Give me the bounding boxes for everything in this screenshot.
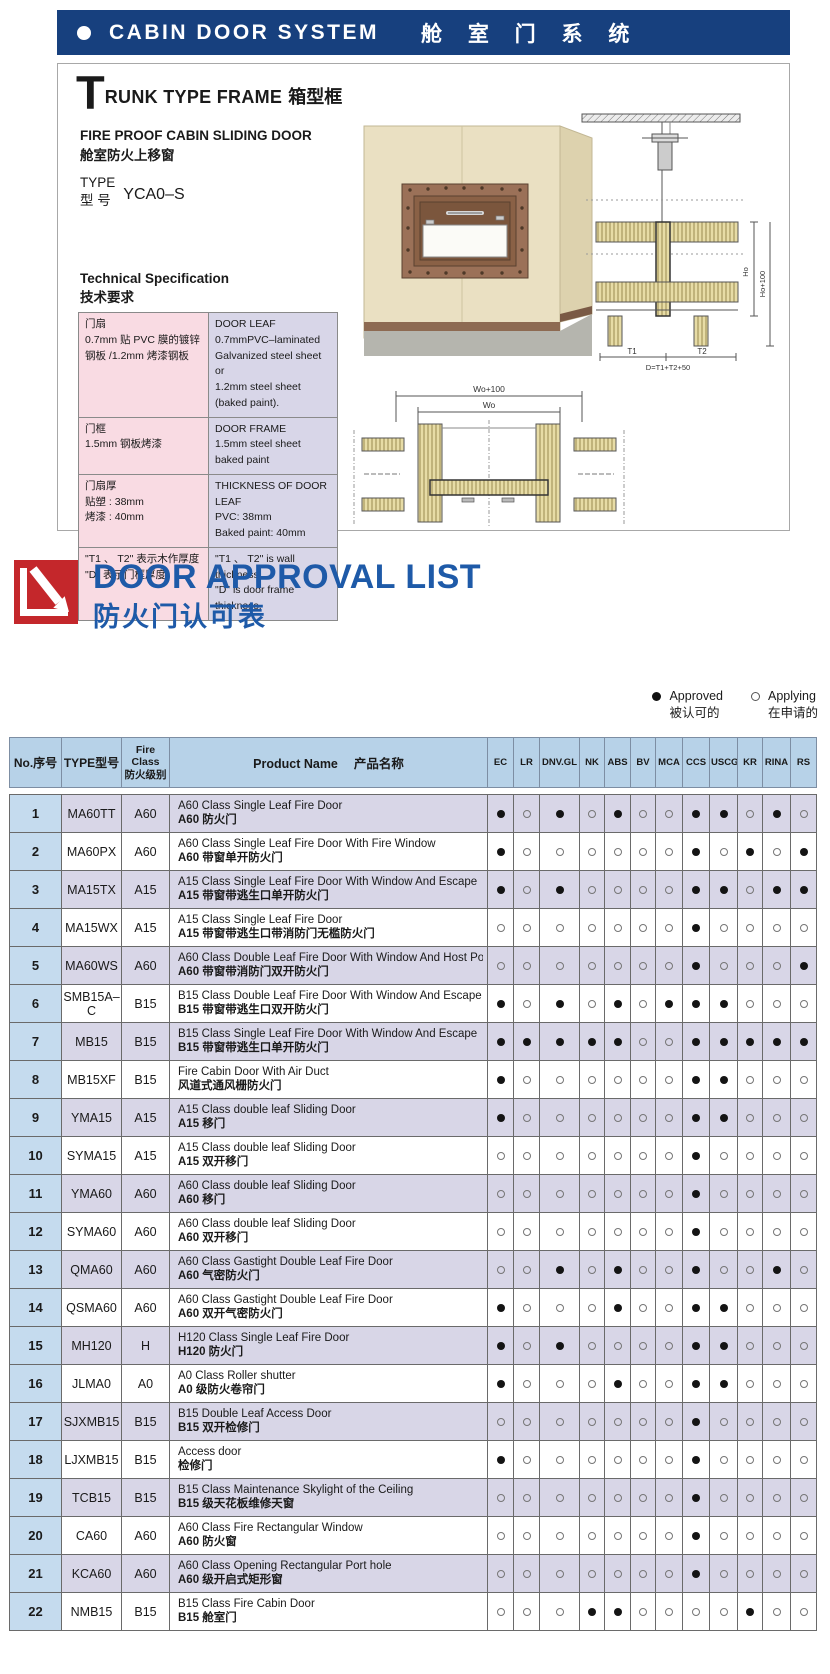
applying-dot: [556, 1190, 564, 1198]
product-name-zh: A15 带窗带逃生口带消防门无槛防火门: [178, 927, 483, 941]
approval-cell-rs: [791, 1099, 817, 1137]
applying-dot: [773, 1000, 781, 1008]
approved-dot: [614, 810, 622, 818]
approval-cell-nk: [580, 871, 605, 909]
fire-class-cell: B15: [122, 1403, 170, 1441]
applying-dot: [746, 1418, 754, 1426]
approval-cell-ec: [488, 1403, 514, 1441]
applying-dot: [720, 1418, 728, 1426]
row-number-cell: 20: [10, 1517, 62, 1555]
spec-row-door-frame: 门框 1.5mm 钢板烤漆 DOOR FRAME 1.5mm steel she…: [79, 417, 338, 474]
applying-dot: [665, 1532, 673, 1540]
applying-dot: [639, 1114, 647, 1122]
applying-dot: [497, 1190, 505, 1198]
type-cell: MA15WX: [62, 909, 122, 947]
approval-cell-rs: [791, 1441, 817, 1479]
approval-cell-ccs: [683, 795, 710, 833]
type-cell: QSMA60: [62, 1289, 122, 1327]
applying-dot: [614, 1342, 622, 1350]
table-row: 14QSMA60A60A60 Class Gastight Double Lea…: [10, 1289, 817, 1327]
spec-cell-zh: 门框 1.5mm 钢板烤漆: [79, 417, 209, 474]
applying-dot: [523, 1608, 531, 1616]
product-name-zh: A15 移门: [178, 1117, 483, 1131]
approval-cell-mca: [656, 1061, 683, 1099]
approval-cell-uscg: [710, 1517, 738, 1555]
approved-dot: [692, 1152, 700, 1160]
approval-cell-ccs: [683, 1517, 710, 1555]
applying-dot: [523, 1418, 531, 1426]
approval-cell-ec: [488, 1023, 514, 1061]
approval-cell-abs: [605, 871, 631, 909]
approval-cell-ccs: [683, 947, 710, 985]
approval-cell-mca: [656, 1517, 683, 1555]
approval-cell-nk: [580, 795, 605, 833]
approved-dot: [497, 1076, 505, 1084]
approval-cell-rina: [763, 1365, 791, 1403]
applying-dot: [665, 1152, 673, 1160]
approval-cell-bv: [631, 1023, 656, 1061]
fire-class-cell: A60: [122, 1555, 170, 1593]
approval-cell-rs: [791, 1593, 817, 1631]
product-name-en: B15 Double Leaf Access Door: [178, 1408, 483, 1422]
product-name-zh: B15 带窗带逃生口单开防火门: [178, 1041, 483, 1055]
approved-dot: [773, 1266, 781, 1274]
applying-dot: [800, 1190, 808, 1198]
wall-stub-right: [694, 316, 708, 346]
applying-dot: [588, 1228, 596, 1236]
applying-dot: [800, 1532, 808, 1540]
approval-cell-kr: [738, 985, 763, 1023]
approval-cell-rina: [763, 1175, 791, 1213]
applying-dot-icon: [751, 692, 760, 701]
approved-dot: [800, 1038, 808, 1046]
approval-cell-mca: [656, 947, 683, 985]
row-number-cell: 18: [10, 1441, 62, 1479]
dim-label-t2: T2: [697, 347, 707, 356]
approval-cell-kr: [738, 833, 763, 871]
product-name-cell: A60 Class Single Leaf Fire DoorA60 防火门: [170, 795, 488, 833]
approval-cell-ec: [488, 909, 514, 947]
applying-dot: [746, 962, 754, 970]
trunk-type-frame-panel: TRUNK TYPE FRAME箱型框 FIRE PROOF CABIN SLI…: [57, 63, 790, 531]
product-name-cell: Fire Cabin Door With Air Duct风道式通风栅防火门: [170, 1061, 488, 1099]
applying-dot: [614, 1152, 622, 1160]
applying-dot: [665, 1456, 673, 1464]
applying-dot: [556, 1228, 564, 1236]
fire-class-cell: A15: [122, 1137, 170, 1175]
approval-list-header: DOOR APPROVAL LIST 防火门认可表: [14, 560, 481, 634]
applying-dot: [639, 1570, 647, 1578]
approval-table-body: 1MA60TTA60A60 Class Single Leaf Fire Doo…: [10, 795, 817, 1631]
applying-dot: [639, 886, 647, 894]
applying-dot: [523, 962, 531, 970]
product-name-zh: A60 带窗带消防门双开防火门: [178, 965, 483, 979]
approval-cell-abs: [605, 795, 631, 833]
approval-cell-bv: [631, 1593, 656, 1631]
product-name-en: A15 Class double leaf Sliding Door: [178, 1142, 483, 1156]
applying-dot: [588, 1304, 596, 1312]
applying-dot: [692, 1608, 700, 1616]
column-header-rs: RS: [791, 738, 817, 788]
approval-cell-lr: [514, 1593, 540, 1631]
legend-applying: Applying 在申请的: [751, 688, 818, 722]
dim-label-wo-plus: Wo+100: [473, 384, 505, 394]
applying-dot: [497, 924, 505, 932]
applying-dot: [639, 1038, 647, 1046]
type-cell: QMA60: [62, 1251, 122, 1289]
approval-cell-dnvgl: [540, 1061, 580, 1099]
approval-cell-uscg: [710, 833, 738, 871]
approved-dot: [692, 1266, 700, 1274]
product-name-zh: A60 防火窗: [178, 1535, 483, 1549]
approval-cell-uscg: [710, 1061, 738, 1099]
approved-dot: [692, 1190, 700, 1198]
approval-cell-lr: [514, 1099, 540, 1137]
approved-dot: [497, 1000, 505, 1008]
applying-dot: [556, 1304, 564, 1312]
approved-dot: [773, 1038, 781, 1046]
applying-dot: [665, 1494, 673, 1502]
type-cell: LJXMB15: [62, 1441, 122, 1479]
applying-dot: [556, 1608, 564, 1616]
approval-cell-kr: [738, 909, 763, 947]
approval-cell-ec: [488, 1555, 514, 1593]
applying-dot: [746, 1000, 754, 1008]
table-row: 8MB15XFB15Fire Cabin Door With Air Duct风…: [10, 1061, 817, 1099]
applying-dot: [614, 1570, 622, 1578]
approval-cell-bv: [631, 1213, 656, 1251]
approval-cell-rina: [763, 871, 791, 909]
wall-band-bottom: [596, 282, 738, 302]
approval-cell-mca: [656, 1137, 683, 1175]
approval-cell-kr: [738, 1365, 763, 1403]
product-name-zh: A60 双开气密防火门: [178, 1307, 483, 1321]
applying-dot: [639, 1076, 647, 1084]
applying-dot: [523, 1494, 531, 1502]
approval-cell-lr: [514, 871, 540, 909]
applying-dot: [665, 1342, 673, 1350]
row-number-cell: 16: [10, 1365, 62, 1403]
approval-cell-lr: [514, 909, 540, 947]
approval-cell-kr: [738, 1023, 763, 1061]
vertical-section-drawing: Ho Ho+100 T1 T2 D=T1+T2+50: [576, 104, 788, 374]
applying-dot: [746, 1570, 754, 1578]
approval-cell-abs: [605, 1061, 631, 1099]
wall-stub-tr: [574, 438, 616, 451]
approval-cell-ec: [488, 1593, 514, 1631]
product-name-cell: B15 Class Maintenance Skylight of the Ce…: [170, 1479, 488, 1517]
applying-dot: [588, 1152, 596, 1160]
applying-dot: [614, 848, 622, 856]
applying-dot: [773, 1342, 781, 1350]
applying-dot: [800, 924, 808, 932]
fire-class-cell: A60: [122, 1517, 170, 1555]
tech-spec-title: Technical Specification 技术要求: [80, 270, 229, 308]
product-name-zh: A60 级开启式矩形窗: [178, 1573, 483, 1587]
approval-cell-mca: [656, 1175, 683, 1213]
applying-dot: [800, 1266, 808, 1274]
applying-dot: [588, 810, 596, 818]
applying-dot: [746, 1190, 754, 1198]
approval-cell-dnvgl: [540, 1479, 580, 1517]
approved-dot: [614, 1038, 622, 1046]
applying-dot: [746, 1114, 754, 1122]
applying-dot: [523, 1570, 531, 1578]
row-number-cell: 3: [10, 871, 62, 909]
approved-dot: [556, 810, 564, 818]
approval-cell-rs: [791, 1289, 817, 1327]
applying-dot: [746, 886, 754, 894]
applying-dot: [639, 1380, 647, 1388]
wall-stub-left: [608, 316, 622, 346]
approval-cell-abs: [605, 947, 631, 985]
applying-dot: [720, 848, 728, 856]
product-name-en: Access door: [178, 1446, 483, 1460]
type-cell: MB15: [62, 1023, 122, 1061]
approval-cell-ccs: [683, 1137, 710, 1175]
applying-dot: [746, 1266, 754, 1274]
column-header-bv: BV: [631, 738, 656, 788]
applying-dot: [588, 962, 596, 970]
applying-dot: [639, 1228, 647, 1236]
approved-dot: [614, 1266, 622, 1274]
applying-dot: [523, 1456, 531, 1464]
approved-dot: [692, 886, 700, 894]
approval-cell-rs: [791, 1327, 817, 1365]
product-name-cell: B15 Class Double Leaf Fire Door With Win…: [170, 985, 488, 1023]
product-name-cell: A60 Class Gastight Double Leaf Fire Door…: [170, 1289, 488, 1327]
table-row: 16JLMA0A0A0 Class Roller shutterA0 级防火卷帘…: [10, 1365, 817, 1403]
approval-cell-uscg: [710, 1213, 738, 1251]
approved-dot: [692, 1076, 700, 1084]
approved-dot: [556, 1266, 564, 1274]
approval-cell-kr: [738, 1441, 763, 1479]
applying-dot: [588, 1000, 596, 1008]
applying-dot: [523, 1152, 531, 1160]
approval-cell-bv: [631, 833, 656, 871]
approval-cell-mca: [656, 1213, 683, 1251]
approval-cell-ccs: [683, 1023, 710, 1061]
row-number-cell: 11: [10, 1175, 62, 1213]
latch-left: [426, 220, 434, 224]
applying-dot: [746, 1304, 754, 1312]
product-name-en: A60 Class Opening Rectangular Port hole: [178, 1560, 483, 1574]
row-number-cell: 13: [10, 1251, 62, 1289]
approval-cell-rina: [763, 833, 791, 871]
applying-dot: [588, 1342, 596, 1350]
approved-dot: [720, 1380, 728, 1388]
approval-cell-lr: [514, 1441, 540, 1479]
applying-dot: [746, 1380, 754, 1388]
product-name-en: B15 Class Maintenance Skylight of the Ce…: [178, 1484, 483, 1498]
approval-cell-rs: [791, 1517, 817, 1555]
approval-cell-ccs: [683, 1555, 710, 1593]
product-name-en: B15 Class Single Leaf Fire Door With Win…: [178, 1028, 483, 1042]
approval-cell-ccs: [683, 985, 710, 1023]
approved-dot: [720, 810, 728, 818]
approval-cell-kr: [738, 1479, 763, 1517]
applying-dot: [665, 1266, 673, 1274]
approval-cell-rina: [763, 1479, 791, 1517]
approval-cell-nk: [580, 1175, 605, 1213]
applying-dot: [773, 1418, 781, 1426]
approval-cell-rs: [791, 1137, 817, 1175]
applying-dot: [800, 1076, 808, 1084]
table-row: 12SYMA60A60A60 Class double leaf Sliding…: [10, 1213, 817, 1251]
row-number-cell: 14: [10, 1289, 62, 1327]
approval-cell-uscg: [710, 1175, 738, 1213]
approval-cell-rina: [763, 985, 791, 1023]
applying-dot: [556, 848, 564, 856]
applying-dot: [800, 1456, 808, 1464]
approval-cell-ccs: [683, 1175, 710, 1213]
approval-cell-dnvgl: [540, 1517, 580, 1555]
approval-cell-lr: [514, 1365, 540, 1403]
approved-dot: [720, 1000, 728, 1008]
applying-dot: [614, 962, 622, 970]
product-name-cell: H120 Class Single Leaf Fire DoorH120 防火门: [170, 1327, 488, 1365]
product-name-cell: A15 Class double leaf Sliding DoorA15 移门: [170, 1099, 488, 1137]
row-number-cell: 12: [10, 1213, 62, 1251]
approval-cell-bv: [631, 1327, 656, 1365]
wall-stub-br: [574, 498, 616, 511]
approved-dot: [614, 1380, 622, 1388]
applying-dot: [665, 1190, 673, 1198]
type-cell: SYMA60: [62, 1213, 122, 1251]
approved-dot: [692, 1532, 700, 1540]
applying-dot: [665, 1228, 673, 1236]
product-name-zh: A60 双开移门: [178, 1231, 483, 1245]
approval-cell-nk: [580, 833, 605, 871]
approved-dot: [497, 1380, 505, 1388]
approval-cell-lr: [514, 1327, 540, 1365]
approval-title-en: DOOR APPROVAL LIST: [93, 560, 481, 595]
applying-dot: [588, 1380, 596, 1388]
approval-cell-mca: [656, 1403, 683, 1441]
approval-cell-ccs: [683, 871, 710, 909]
approval-cell-abs: [605, 1099, 631, 1137]
approved-dot: [556, 1038, 564, 1046]
table-row: 22NMB15B15B15 Class Fire Cabin DoorB15 舱…: [10, 1593, 817, 1631]
applying-dot: [773, 1494, 781, 1502]
approval-cell-kr: [738, 1061, 763, 1099]
approval-cell-rina: [763, 1251, 791, 1289]
approval-cell-mca: [656, 1479, 683, 1517]
approved-dot: [720, 1076, 728, 1084]
fire-class-cell: A15: [122, 909, 170, 947]
applying-dot: [614, 1228, 622, 1236]
type-cell: NMB15: [62, 1593, 122, 1631]
approval-cell-mca: [656, 795, 683, 833]
approval-cell-rs: [791, 1555, 817, 1593]
approval-cell-nk: [580, 1023, 605, 1061]
applying-dot: [556, 1456, 564, 1464]
applying-dot: [639, 1190, 647, 1198]
approved-dot: [773, 886, 781, 894]
approval-cell-abs: [605, 833, 631, 871]
applying-dot: [588, 1418, 596, 1426]
approval-cell-mca: [656, 1099, 683, 1137]
approval-cell-rs: [791, 795, 817, 833]
applying-dot: [800, 1000, 808, 1008]
approved-dot: [692, 1418, 700, 1426]
approval-cell-dnvgl: [540, 833, 580, 871]
row-number-cell: 15: [10, 1327, 62, 1365]
approval-cell-uscg: [710, 1289, 738, 1327]
legend-approved-zh: 被认可的: [669, 705, 723, 722]
approval-cell-nk: [580, 1289, 605, 1327]
applying-dot: [614, 924, 622, 932]
approval-cell-dnvgl: [540, 947, 580, 985]
approval-cell-bv: [631, 985, 656, 1023]
table-row: 7MB15B15B15 Class Single Leaf Fire Door …: [10, 1023, 817, 1061]
dim-label-ho: Ho: [741, 267, 750, 277]
banner-title-zh: 舱 室 门 系 统: [421, 18, 639, 48]
applying-dot: [665, 1076, 673, 1084]
applying-dot: [497, 1152, 505, 1160]
column-header-nk: NK: [580, 738, 605, 788]
column-header-fireclass: Fire Class 防火级别: [122, 738, 170, 788]
applying-dot: [614, 1190, 622, 1198]
approved-dot: [588, 1038, 596, 1046]
product-name-en: H120 Class Single Leaf Fire Door: [178, 1332, 483, 1346]
approval-cell-lr: [514, 985, 540, 1023]
approval-cell-kr: [738, 947, 763, 985]
approval-cell-ccs: [683, 1099, 710, 1137]
fire-class-cell: B15: [122, 1593, 170, 1631]
approval-cell-abs: [605, 909, 631, 947]
applying-dot: [773, 848, 781, 856]
product-name-cell: A60 Class Double Leaf Fire Door With Win…: [170, 947, 488, 985]
applying-dot: [639, 810, 647, 818]
approval-cell-nk: [580, 1403, 605, 1441]
approval-cell-rs: [791, 1213, 817, 1251]
applying-dot: [639, 924, 647, 932]
type-block: TYPE 型 号 YCA0–S: [80, 174, 185, 210]
approved-dot: [523, 1038, 531, 1046]
applying-dot: [773, 1608, 781, 1616]
applying-dot: [556, 1114, 564, 1122]
product-name-cell: A60 Class Fire Rectangular WindowA60 防火窗: [170, 1517, 488, 1555]
table-row: 9YMA15A15A15 Class double leaf Sliding D…: [10, 1099, 817, 1137]
applying-dot: [746, 924, 754, 932]
legend-applying-zh: 在申请的: [768, 705, 818, 722]
product-name-zh: 检修门: [178, 1459, 483, 1473]
approval-cell-lr: [514, 1175, 540, 1213]
applying-dot: [588, 1114, 596, 1122]
approval-cell-bv: [631, 1099, 656, 1137]
approval-cell-ec: [488, 1213, 514, 1251]
approval-cell-bv: [631, 1403, 656, 1441]
approval-cell-abs: [605, 1403, 631, 1441]
applying-dot: [720, 962, 728, 970]
applying-dot: [720, 924, 728, 932]
applying-dot: [665, 1570, 673, 1578]
applying-dot: [639, 962, 647, 970]
applying-dot: [773, 1228, 781, 1236]
table-row: 3MA15TXA15A15 Class Single Leaf Fire Doo…: [10, 871, 817, 909]
trunk-title-zh: 箱型框: [288, 87, 342, 107]
approval-cell-bv: [631, 947, 656, 985]
approval-cell-lr: [514, 1061, 540, 1099]
applying-dot: [556, 1418, 564, 1426]
approval-cell-kr: [738, 1555, 763, 1593]
approval-cell-dnvgl: [540, 1593, 580, 1631]
column-header-lr: LR: [514, 738, 540, 788]
approval-cell-uscg: [710, 871, 738, 909]
fire-class-cell: A60: [122, 1289, 170, 1327]
applying-dot: [523, 1000, 531, 1008]
